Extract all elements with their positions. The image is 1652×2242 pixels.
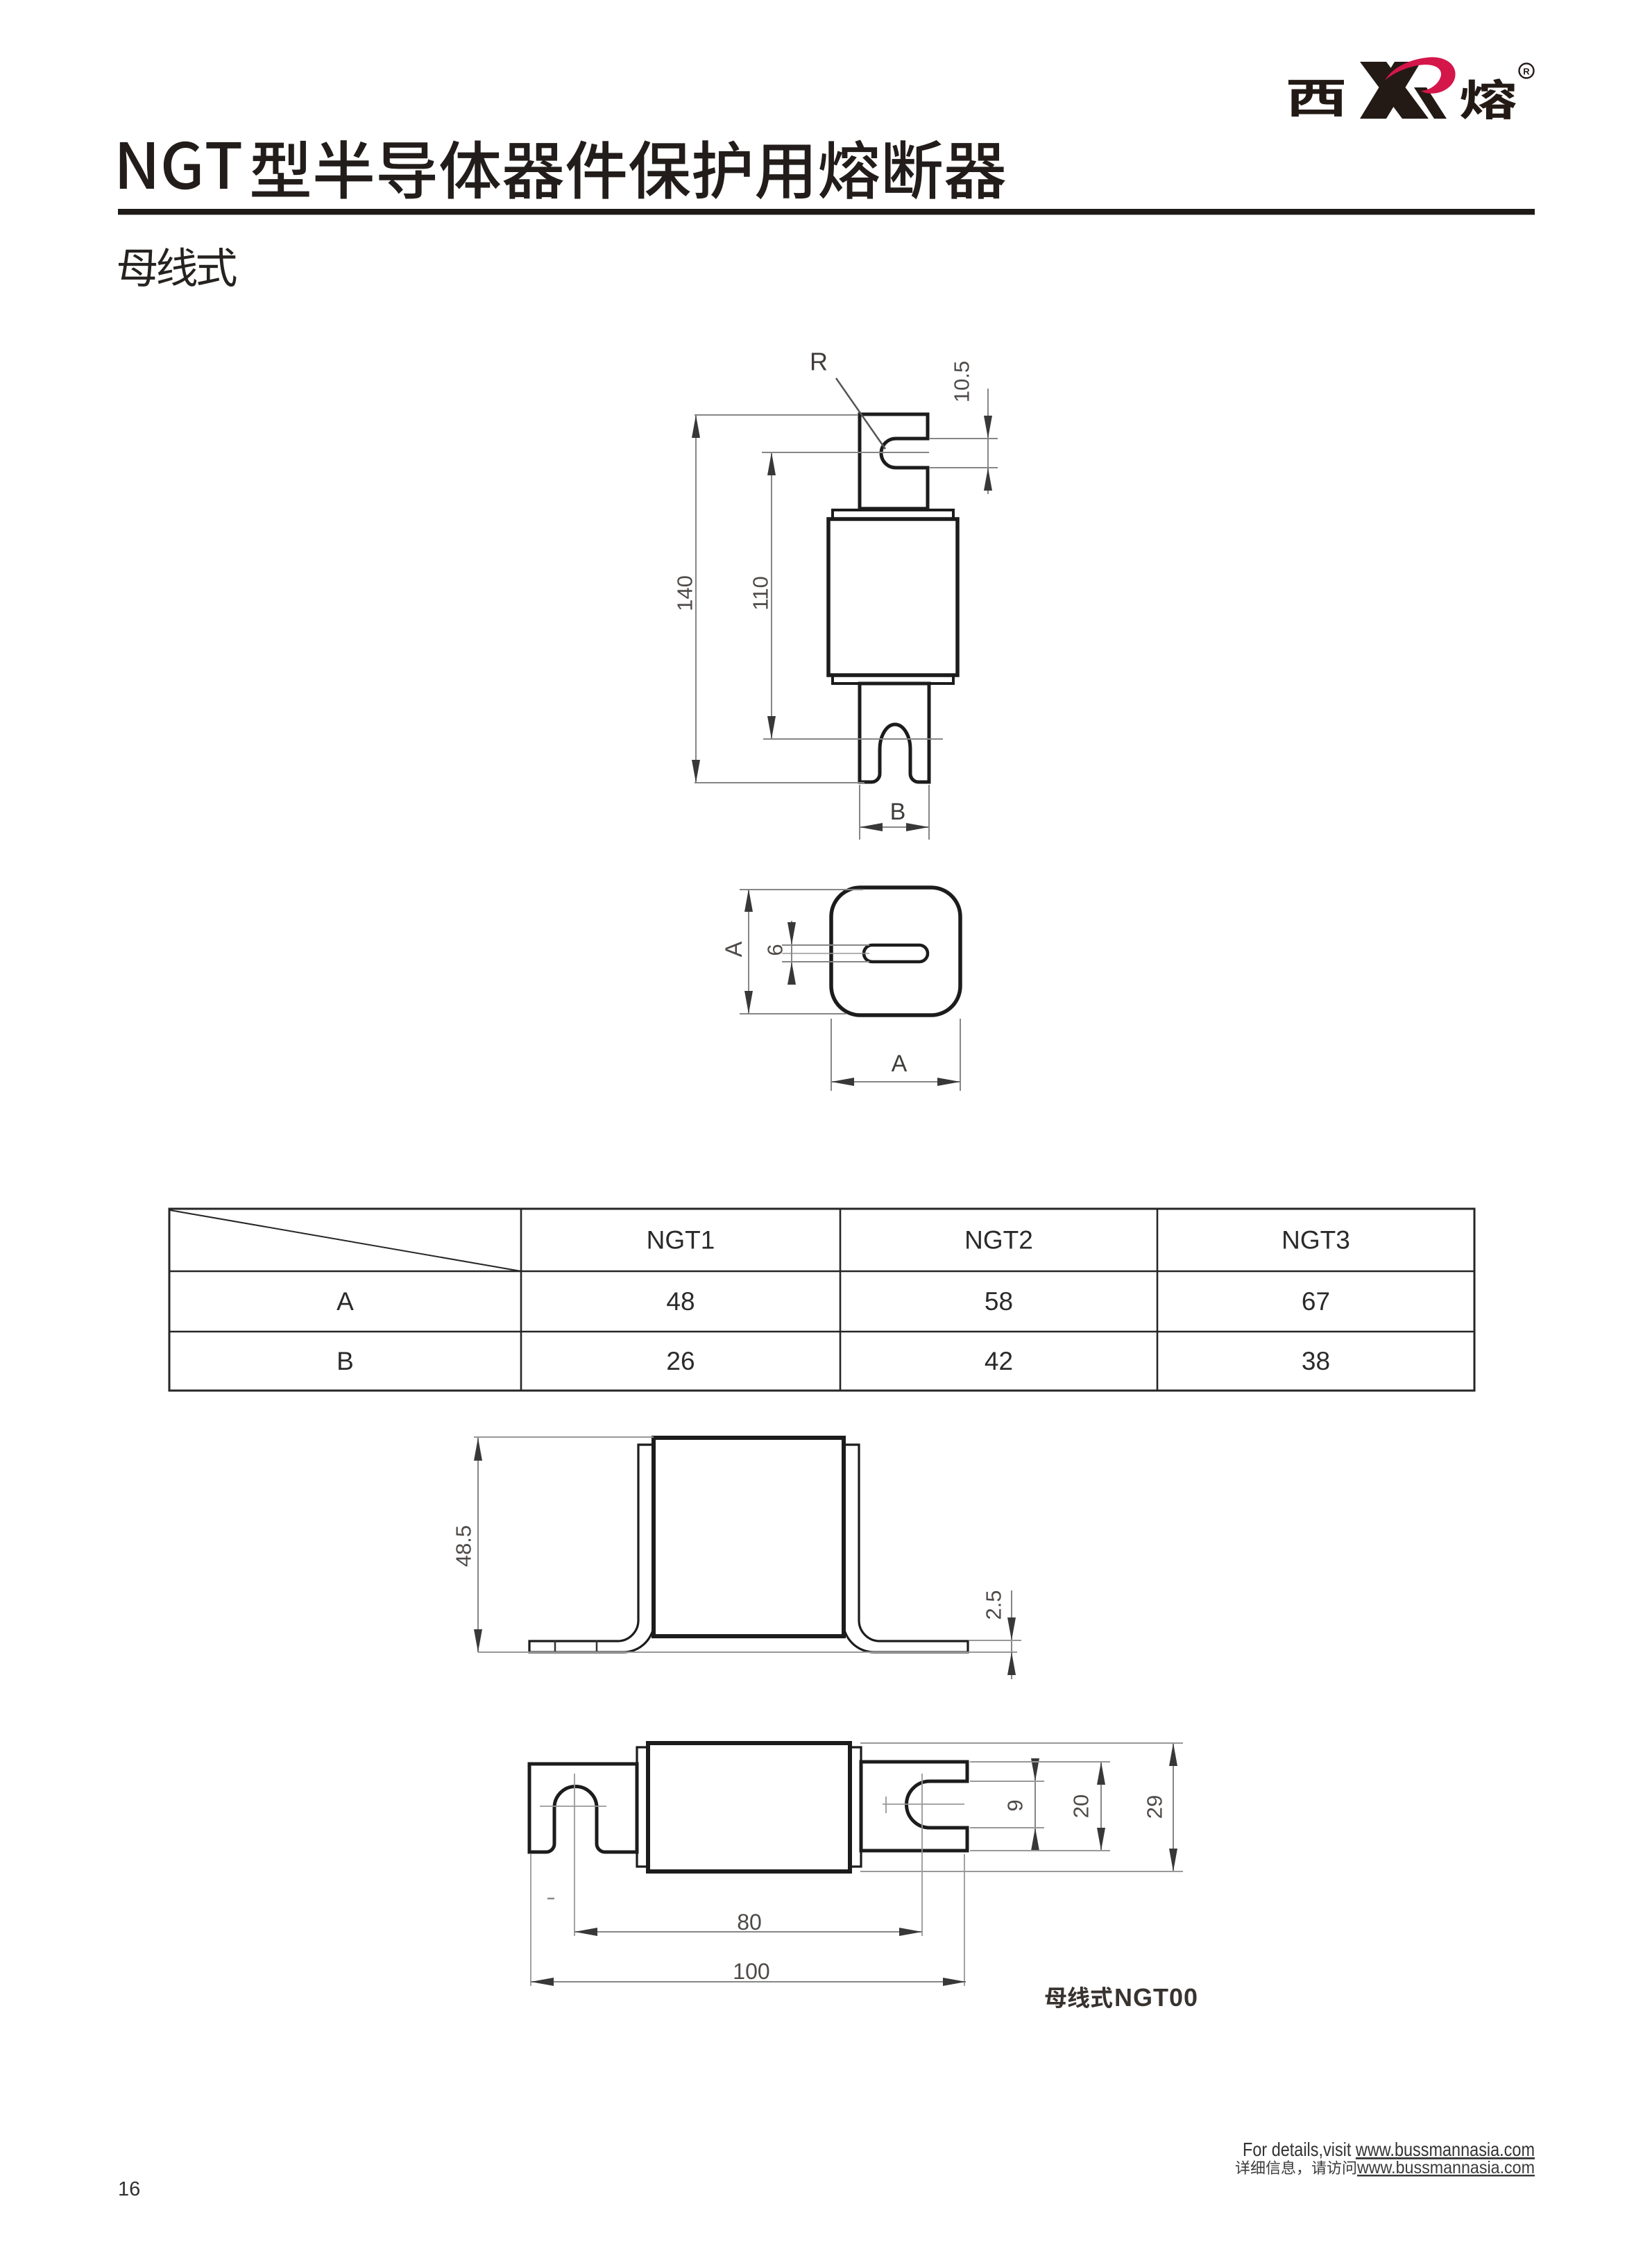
svg-text:100: 100 — [733, 1959, 769, 1984]
svg-text:NGT2: NGT2 — [964, 1226, 1033, 1255]
svg-text:20: 20 — [1069, 1794, 1093, 1818]
svg-text:R: R — [810, 348, 828, 376]
svg-text:16: 16 — [118, 2178, 140, 2200]
svg-text:140: 140 — [673, 575, 697, 611]
svg-text:10.5: 10.5 — [950, 361, 974, 402]
svg-text:A: A — [721, 941, 747, 957]
svg-text:29: 29 — [1143, 1795, 1167, 1819]
svg-text:R: R — [1523, 67, 1530, 77]
svg-text:A: A — [892, 1051, 908, 1077]
svg-text:48: 48 — [666, 1287, 695, 1316]
svg-text:NGT3: NGT3 — [1281, 1226, 1350, 1255]
svg-text:58: 58 — [985, 1287, 1013, 1316]
svg-text:B: B — [890, 799, 906, 825]
svg-text:42: 42 — [985, 1347, 1013, 1375]
svg-text:80: 80 — [737, 1910, 762, 1935]
svg-text:48.5: 48.5 — [452, 1525, 476, 1567]
svg-text:67: 67 — [1302, 1287, 1330, 1316]
svg-text:B: B — [337, 1347, 354, 1375]
svg-text:NGT1: NGT1 — [647, 1226, 715, 1255]
svg-text:2.5: 2.5 — [982, 1590, 1006, 1620]
svg-text:38: 38 — [1302, 1347, 1330, 1375]
svg-text:9: 9 — [1003, 1799, 1028, 1811]
svg-text:www.bussmannasia.com: www.bussmannasia.com — [1356, 2158, 1535, 2177]
svg-text:110: 110 — [749, 576, 773, 610]
svg-text:NGT00: NGT00 — [1114, 1983, 1198, 2012]
svg-text:For details,visit www.bussmann: For details,visit www.bussmannasia.com — [1243, 2139, 1535, 2160]
svg-text:A: A — [337, 1287, 354, 1316]
svg-text:26: 26 — [666, 1347, 695, 1375]
svg-text:6: 6 — [763, 944, 787, 956]
